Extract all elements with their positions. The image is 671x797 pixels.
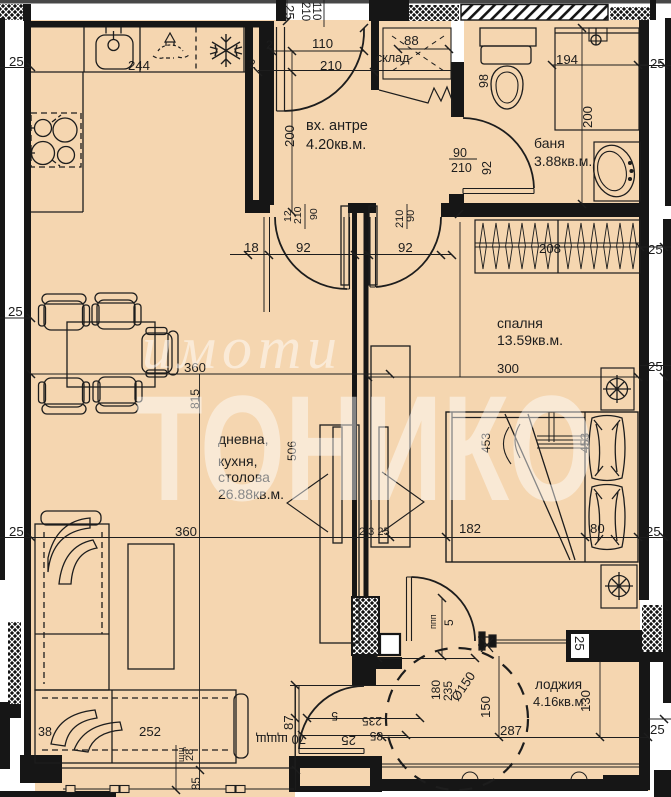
svg-text:244: 244 [128,58,150,73]
svg-text:25: 25 [8,304,23,319]
svg-text:18: 18 [244,240,259,255]
svg-text:110: 110 [312,36,333,51]
svg-text:13.59кв.м.: 13.59кв.м. [497,332,563,348]
svg-text:287: 287 [500,723,522,738]
svg-text:вх. антре: вх. антре [306,118,368,134]
svg-text:баня: баня [534,135,565,151]
svg-text:98: 98 [477,74,491,88]
svg-text:ппп: ппп [428,614,438,629]
svg-text:194: 194 [556,52,578,67]
svg-text:2: 2 [266,38,273,52]
svg-text:150: 150 [478,696,493,718]
svg-text:92: 92 [398,240,413,255]
svg-text:28: 28 [184,749,196,761]
svg-text:210: 210 [320,58,342,73]
svg-text:38: 38 [38,725,52,739]
svg-text:25: 25 [282,5,297,20]
svg-text:5: 5 [442,619,456,626]
svg-text:92: 92 [296,240,311,255]
svg-text:210: 210 [299,2,311,21]
svg-text:210: 210 [394,210,406,228]
svg-text:200: 200 [282,125,297,147]
svg-text:склад: склад [376,51,410,65]
svg-text:92: 92 [480,161,494,175]
svg-text:25: 25 [648,359,663,374]
svg-text:25: 25 [646,524,661,539]
svg-text:235: 235 [362,714,382,728]
svg-text:25: 25 [572,636,587,651]
svg-text:210: 210 [451,161,472,175]
svg-text:4.16кв.м.: 4.16кв.м. [533,694,587,709]
svg-text:5: 5 [331,709,338,723]
svg-text:87: 87 [281,715,296,730]
svg-text:70 щщщ: 70 щщщ [256,732,306,747]
svg-text:200: 200 [580,106,595,128]
svg-text:4.20кв.м.: 4.20кв.м. [306,137,366,153]
svg-text:25: 25 [650,722,665,737]
svg-text:25: 25 [9,54,24,69]
svg-text:ТОНИКО: ТОНИКО [136,364,594,532]
svg-text:110: 110 [310,2,322,20]
svg-text:25: 25 [648,242,663,257]
svg-text:208: 208 [539,241,561,256]
svg-text:90: 90 [405,210,417,222]
svg-text:лоджия: лоджия [535,677,582,692]
svg-text:25: 25 [650,56,665,71]
svg-text:2: 2 [249,57,256,71]
svg-text:спалня: спалня [497,315,543,331]
svg-text:25: 25 [341,733,356,748]
svg-text:90: 90 [453,146,467,160]
svg-text:252: 252 [139,724,161,739]
svg-text:85: 85 [369,729,383,743]
svg-text:210: 210 [292,206,304,224]
svg-text:88: 88 [404,33,419,48]
svg-text:3.88кв.м.: 3.88кв.м. [534,153,592,169]
svg-text:85: 85 [191,777,203,790]
svg-text:90: 90 [308,208,320,220]
svg-text:25: 25 [9,524,24,539]
